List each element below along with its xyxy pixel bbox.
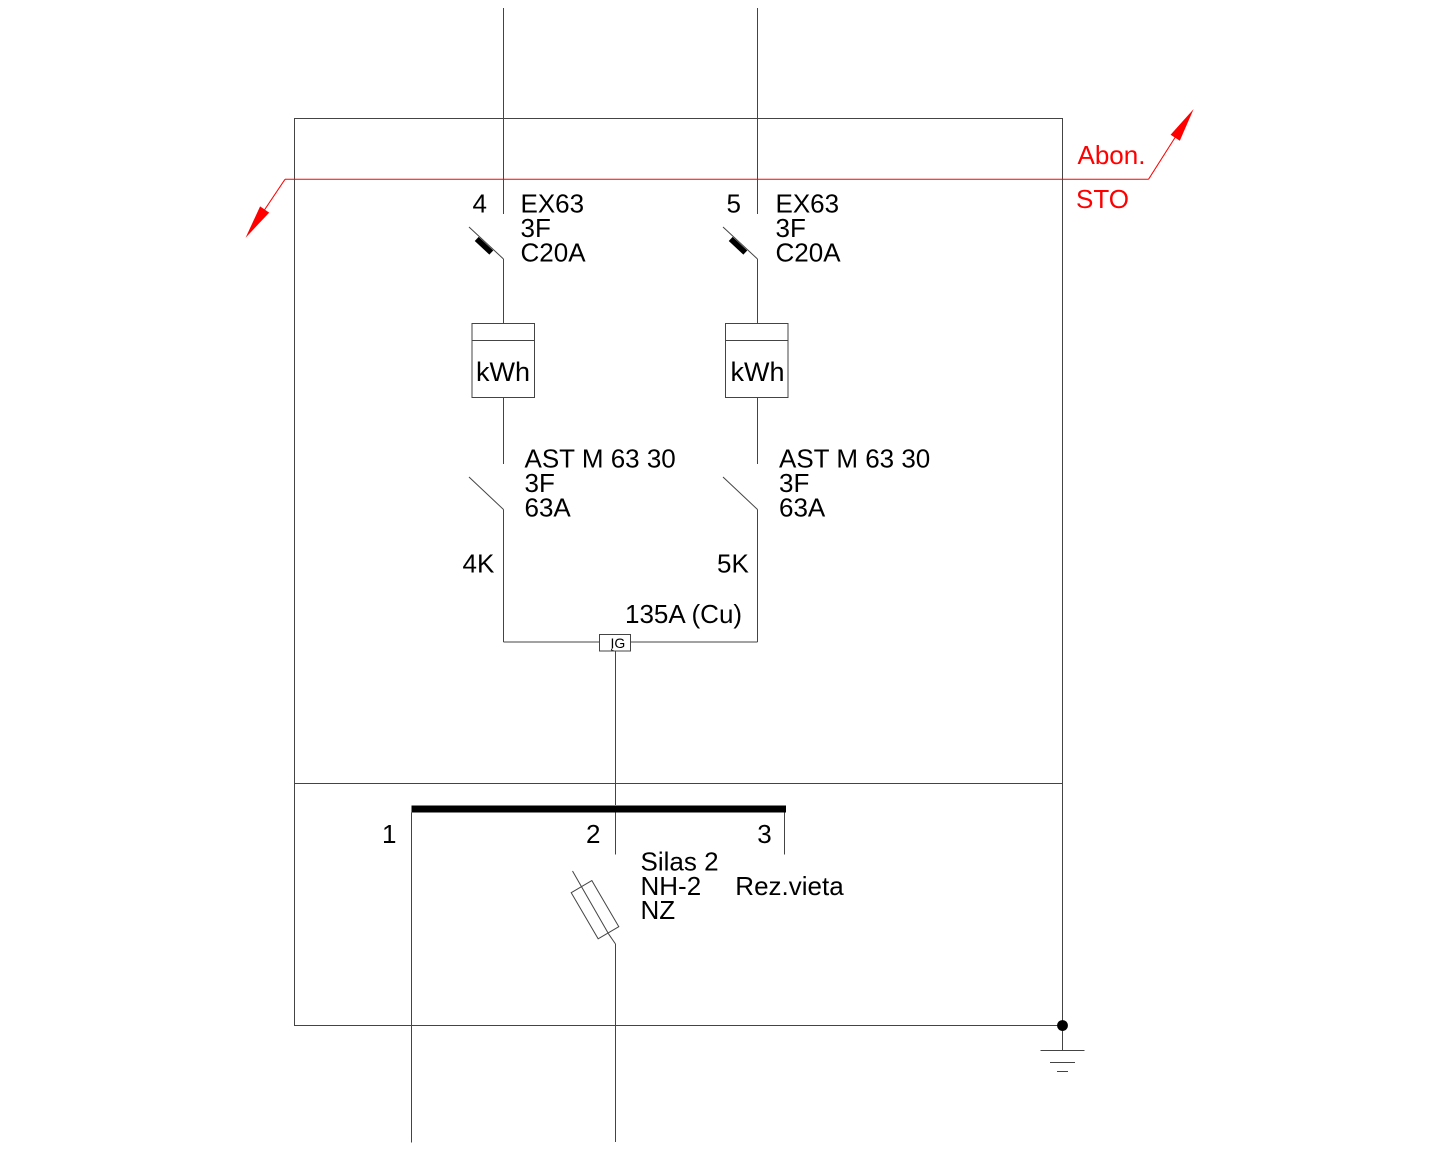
svg-text:5: 5	[727, 189, 741, 219]
svg-text:C20A: C20A	[521, 238, 587, 268]
svg-text:2: 2	[586, 819, 600, 849]
svg-text:NZ: NZ	[641, 895, 676, 925]
svg-text:5K: 5K	[717, 549, 749, 579]
svg-text:ĮG: ĮG	[611, 635, 626, 651]
svg-text:4K: 4K	[463, 549, 495, 579]
svg-text:3: 3	[757, 819, 771, 849]
svg-text:63A: 63A	[779, 493, 826, 523]
svg-text:kWh: kWh	[476, 357, 530, 387]
svg-text:kWh: kWh	[731, 357, 785, 387]
svg-text:Rez.vieta: Rez.vieta	[735, 871, 844, 901]
svg-text:135A (Cu): 135A (Cu)	[625, 599, 742, 629]
svg-text:1: 1	[382, 819, 396, 849]
svg-text:C20A: C20A	[776, 238, 842, 268]
svg-text:4: 4	[473, 189, 487, 219]
svg-text:STO: STO	[1076, 184, 1129, 214]
svg-text:Abon.: Abon.	[1078, 140, 1146, 170]
svg-text:63A: 63A	[525, 493, 572, 523]
